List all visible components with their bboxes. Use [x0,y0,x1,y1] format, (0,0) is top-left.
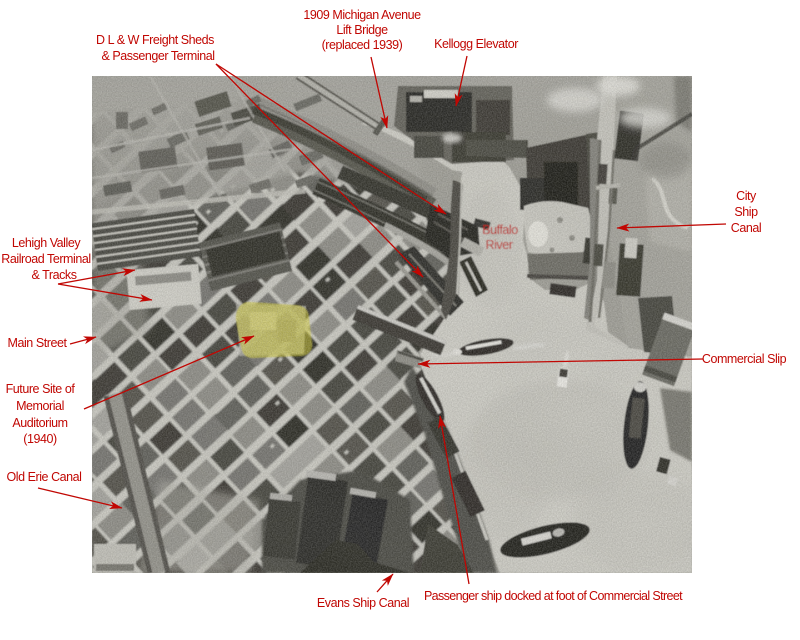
svg-text:(1940): (1940) [23,432,57,446]
svg-text:Ship: Ship [734,205,758,219]
svg-text:Lehigh Valley: Lehigh Valley [12,236,81,250]
svg-text:Passenger ship docked at foot: Passenger ship docked at foot of Commerc… [424,589,683,603]
svg-text:Lift Bridge: Lift Bridge [336,23,388,37]
svg-text:Memorial: Memorial [16,399,64,413]
svg-text:City: City [736,189,757,203]
svg-text:Evans Ship Canal: Evans Ship Canal [317,596,409,610]
svg-text:Railroad Terminal: Railroad Terminal [1,252,90,266]
svg-text:1909 Michigan Avenue: 1909 Michigan Avenue [303,8,421,22]
svg-text:D L & W Freight Sheds: D L & W Freight Sheds [96,33,214,47]
svg-text:Kellogg Elevator: Kellogg Elevator [434,37,518,51]
svg-text:Future Site of: Future Site of [6,382,76,396]
svg-text:Commercial Slip: Commercial Slip [702,352,787,366]
svg-text:Canal: Canal [731,221,761,235]
svg-text:(replaced 1939): (replaced 1939) [322,38,403,52]
svg-text:& Tracks: & Tracks [31,268,76,282]
svg-text:Auditorium: Auditorium [12,416,67,430]
svg-text:Main Street: Main Street [8,336,68,350]
svg-text:& Passenger Terminal: & Passenger Terminal [101,49,214,63]
svg-text:Old Erie Canal: Old Erie Canal [7,470,82,484]
